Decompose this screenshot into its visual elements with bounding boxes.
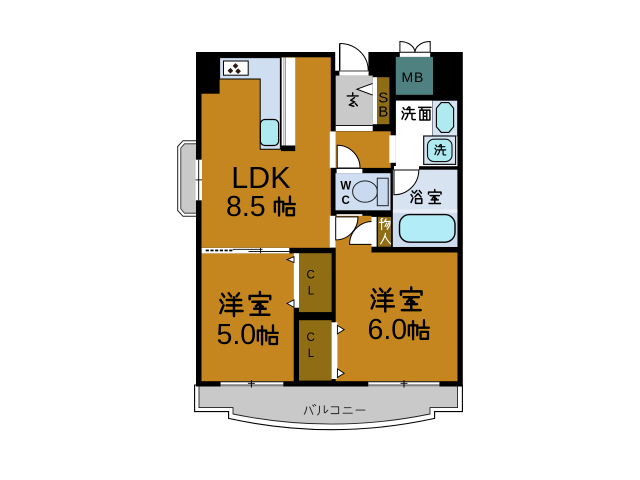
svg-text:8.5: 8.5 bbox=[226, 191, 266, 223]
svg-text:L: L bbox=[308, 348, 315, 360]
svg-text:C: C bbox=[341, 195, 349, 207]
svg-text:B: B bbox=[378, 103, 388, 120]
svg-text:5.0: 5.0 bbox=[217, 319, 257, 351]
svg-text:C: C bbox=[307, 270, 315, 282]
svg-text:C: C bbox=[307, 332, 315, 344]
svg-text:W: W bbox=[340, 181, 351, 193]
svg-text:6.0: 6.0 bbox=[368, 314, 408, 346]
svg-text:LDK: LDK bbox=[231, 161, 290, 195]
svg-text:MB: MB bbox=[401, 69, 424, 85]
svg-text:L: L bbox=[308, 286, 315, 298]
